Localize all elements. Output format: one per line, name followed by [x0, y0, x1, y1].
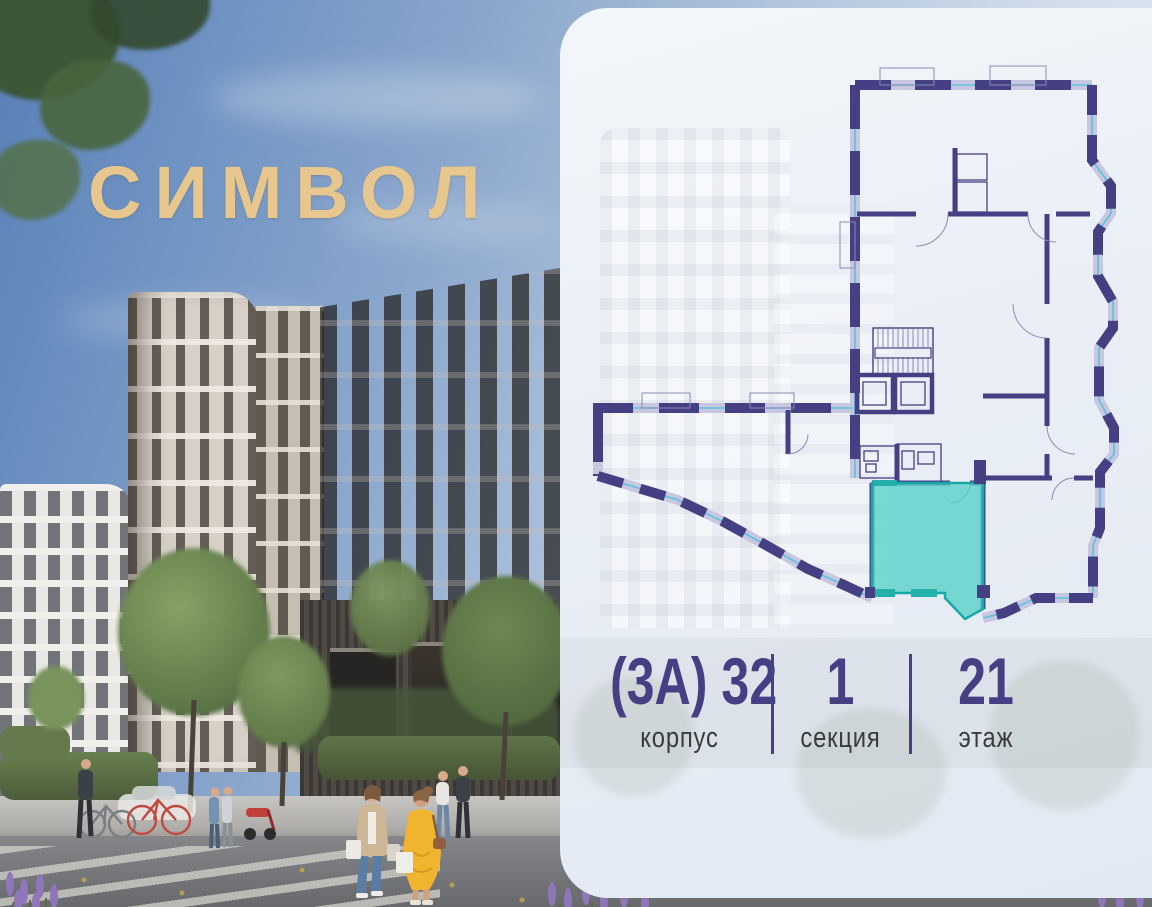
floorplan-ledges	[642, 66, 1046, 408]
detail-floor: 21 этаж	[910, 648, 1062, 755]
elevators	[857, 375, 932, 412]
fallen-leaves	[82, 868, 525, 903]
section-number: 1	[788, 648, 892, 714]
woman-beige-jacket	[346, 785, 400, 898]
apartment-details: (3А) 32 корпус 1 секция 21 этаж	[560, 648, 1152, 764]
floorplan-outer-walls	[593, 85, 1114, 618]
detail-section: 1 секция	[772, 648, 909, 755]
bathroom-pods	[860, 154, 987, 482]
section-label: секция	[784, 722, 896, 755]
listing-page: СИМВОЛ	[0, 0, 1152, 907]
scooter	[244, 808, 276, 840]
floor-number: 21	[928, 648, 1044, 714]
floorplan	[560, 8, 1152, 898]
detail-building: (3А) 32 корпус	[588, 648, 771, 755]
building-label: корпус	[604, 722, 754, 755]
tree-branch-leaves	[0, 140, 80, 220]
tree-branch-leaves	[40, 60, 150, 150]
floor-label: этаж	[924, 722, 1049, 755]
cloud	[210, 70, 540, 126]
building-number: (3А) 32	[610, 648, 749, 714]
apartment-info-card: (3А) 32 корпус 1 секция 21 этаж	[560, 8, 1152, 898]
selected-apartment-highlight[interactable]	[872, 483, 983, 619]
stairs	[873, 328, 933, 376]
brand-logo: СИМВОЛ	[88, 150, 508, 235]
